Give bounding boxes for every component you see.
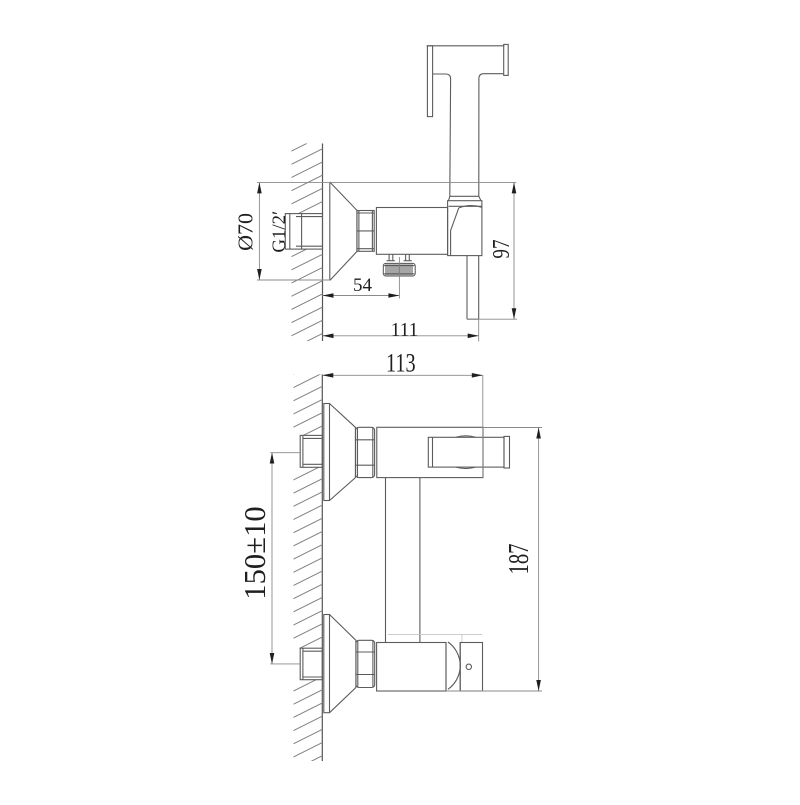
svg-text:187: 187 [504, 543, 535, 574]
svg-text:Ø70: Ø70 [234, 213, 257, 251]
svg-text:150±10: 150±10 [238, 506, 272, 600]
svg-text:97: 97 [488, 239, 515, 258]
svg-text:54: 54 [353, 275, 373, 296]
svg-text:113: 113 [386, 349, 416, 378]
svg-text:111: 111 [391, 320, 419, 341]
svg-text:G1/2′: G1/2′ [269, 211, 290, 253]
